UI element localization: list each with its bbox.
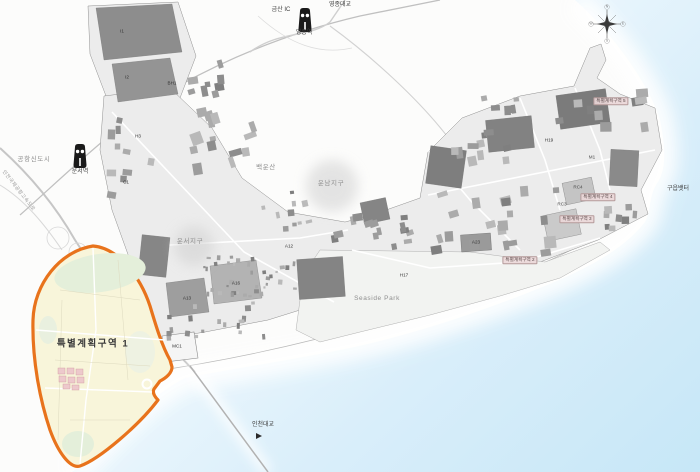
- city-block: [609, 226, 616, 232]
- city-block: [444, 231, 453, 242]
- city-block: [217, 75, 225, 85]
- city-block: [261, 205, 265, 210]
- city-block: [553, 187, 560, 193]
- city-block: [167, 315, 172, 319]
- city-block: [230, 256, 233, 259]
- station-icon-yeongjong: [299, 8, 312, 32]
- city-block: [205, 267, 208, 272]
- city-block: [491, 105, 500, 111]
- unnam-district-halo: [306, 160, 358, 212]
- city-block: [226, 285, 228, 287]
- city-block: [266, 283, 269, 286]
- city-block: [237, 323, 240, 329]
- city-block: [352, 213, 363, 222]
- city-block: [167, 336, 172, 340]
- city-block: [231, 292, 234, 297]
- city-block: [122, 169, 132, 176]
- city-block: [236, 258, 240, 262]
- city-block: [255, 285, 258, 288]
- city-block: [573, 99, 582, 107]
- city-block: [233, 263, 235, 266]
- city-block: [205, 81, 211, 87]
- city-block: [201, 330, 204, 333]
- city-block: [540, 215, 548, 225]
- city-block: [501, 198, 511, 207]
- city-block: [477, 150, 484, 160]
- city-block: [147, 158, 154, 166]
- city-block: [632, 211, 637, 219]
- city-block: [245, 305, 251, 311]
- city-block: [451, 147, 458, 155]
- city-block: [251, 301, 255, 304]
- city-block: [251, 257, 255, 262]
- city-block: [254, 289, 259, 293]
- city-block: [107, 170, 117, 177]
- unseo-district-halo: [174, 226, 214, 266]
- city-block: [469, 239, 480, 250]
- city-block: [229, 280, 234, 285]
- city-block: [189, 146, 198, 155]
- city-block: [187, 76, 198, 85]
- city-block: [625, 204, 632, 211]
- city-block: [292, 201, 297, 207]
- city-block: [262, 270, 266, 274]
- city-block: [640, 122, 649, 133]
- city-block: [498, 220, 509, 231]
- city-block: [292, 222, 297, 226]
- city-block: [600, 122, 611, 132]
- city-block: [285, 265, 289, 270]
- city-block: [504, 105, 513, 113]
- city-block: [288, 209, 295, 216]
- city-block: [262, 334, 265, 340]
- city-block: [241, 147, 250, 157]
- city-block: [594, 110, 603, 120]
- city-block: [203, 266, 205, 268]
- city-block: [108, 129, 116, 139]
- city-block: [622, 216, 630, 223]
- city-block: [520, 186, 529, 197]
- city-block: [293, 287, 297, 290]
- city-block: [283, 226, 289, 232]
- city-block: [290, 191, 294, 195]
- city-block: [166, 331, 171, 336]
- city-block: [544, 236, 557, 249]
- city-block: [636, 88, 649, 97]
- city-block: [207, 292, 209, 297]
- city-block: [275, 271, 278, 273]
- city-block: [214, 262, 218, 266]
- city-block: [263, 286, 265, 288]
- city-block: [280, 265, 285, 269]
- city-block: [120, 176, 127, 183]
- city-block: [615, 214, 622, 222]
- city-block: [259, 292, 263, 297]
- city-block: [292, 261, 295, 266]
- city-block: [400, 215, 407, 221]
- city-block: [238, 330, 242, 334]
- city-block: [250, 271, 253, 275]
- city-block: [185, 330, 191, 336]
- city-block: [188, 315, 193, 321]
- city-block: [248, 295, 251, 297]
- city-block: [604, 206, 612, 214]
- city-block: [227, 261, 230, 264]
- city-block: [237, 292, 239, 295]
- station-icon-unseo: [74, 144, 87, 168]
- city-block: [194, 335, 198, 338]
- city-block: [484, 129, 494, 136]
- city-block: [217, 319, 221, 324]
- city-block: [587, 105, 595, 114]
- city-block: [507, 210, 513, 217]
- city-block: [192, 163, 203, 176]
- city-block: [116, 126, 121, 134]
- map-canvas: [0, 0, 700, 472]
- city-block: [391, 243, 397, 250]
- city-block: [210, 288, 214, 292]
- city-block: [468, 143, 479, 149]
- city-block: [223, 322, 226, 327]
- city-block: [513, 97, 519, 102]
- city-block: [115, 143, 121, 149]
- city-block: [481, 95, 488, 101]
- city-block: [243, 294, 247, 297]
- city-block: [217, 255, 221, 260]
- city-block: [471, 197, 480, 209]
- map: 금산 IC영종대교영종역공항신도시운서역인천국제공항고속도로백운산운남지구운서지…: [0, 0, 700, 472]
- city-block: [239, 319, 245, 323]
- city-block: [278, 279, 283, 284]
- city-block: [218, 291, 222, 295]
- city-block: [555, 117, 564, 124]
- city-block: [269, 274, 273, 278]
- city-block: [193, 304, 197, 309]
- city-block: [502, 156, 509, 164]
- city-block: [247, 262, 250, 267]
- city-block: [116, 117, 123, 124]
